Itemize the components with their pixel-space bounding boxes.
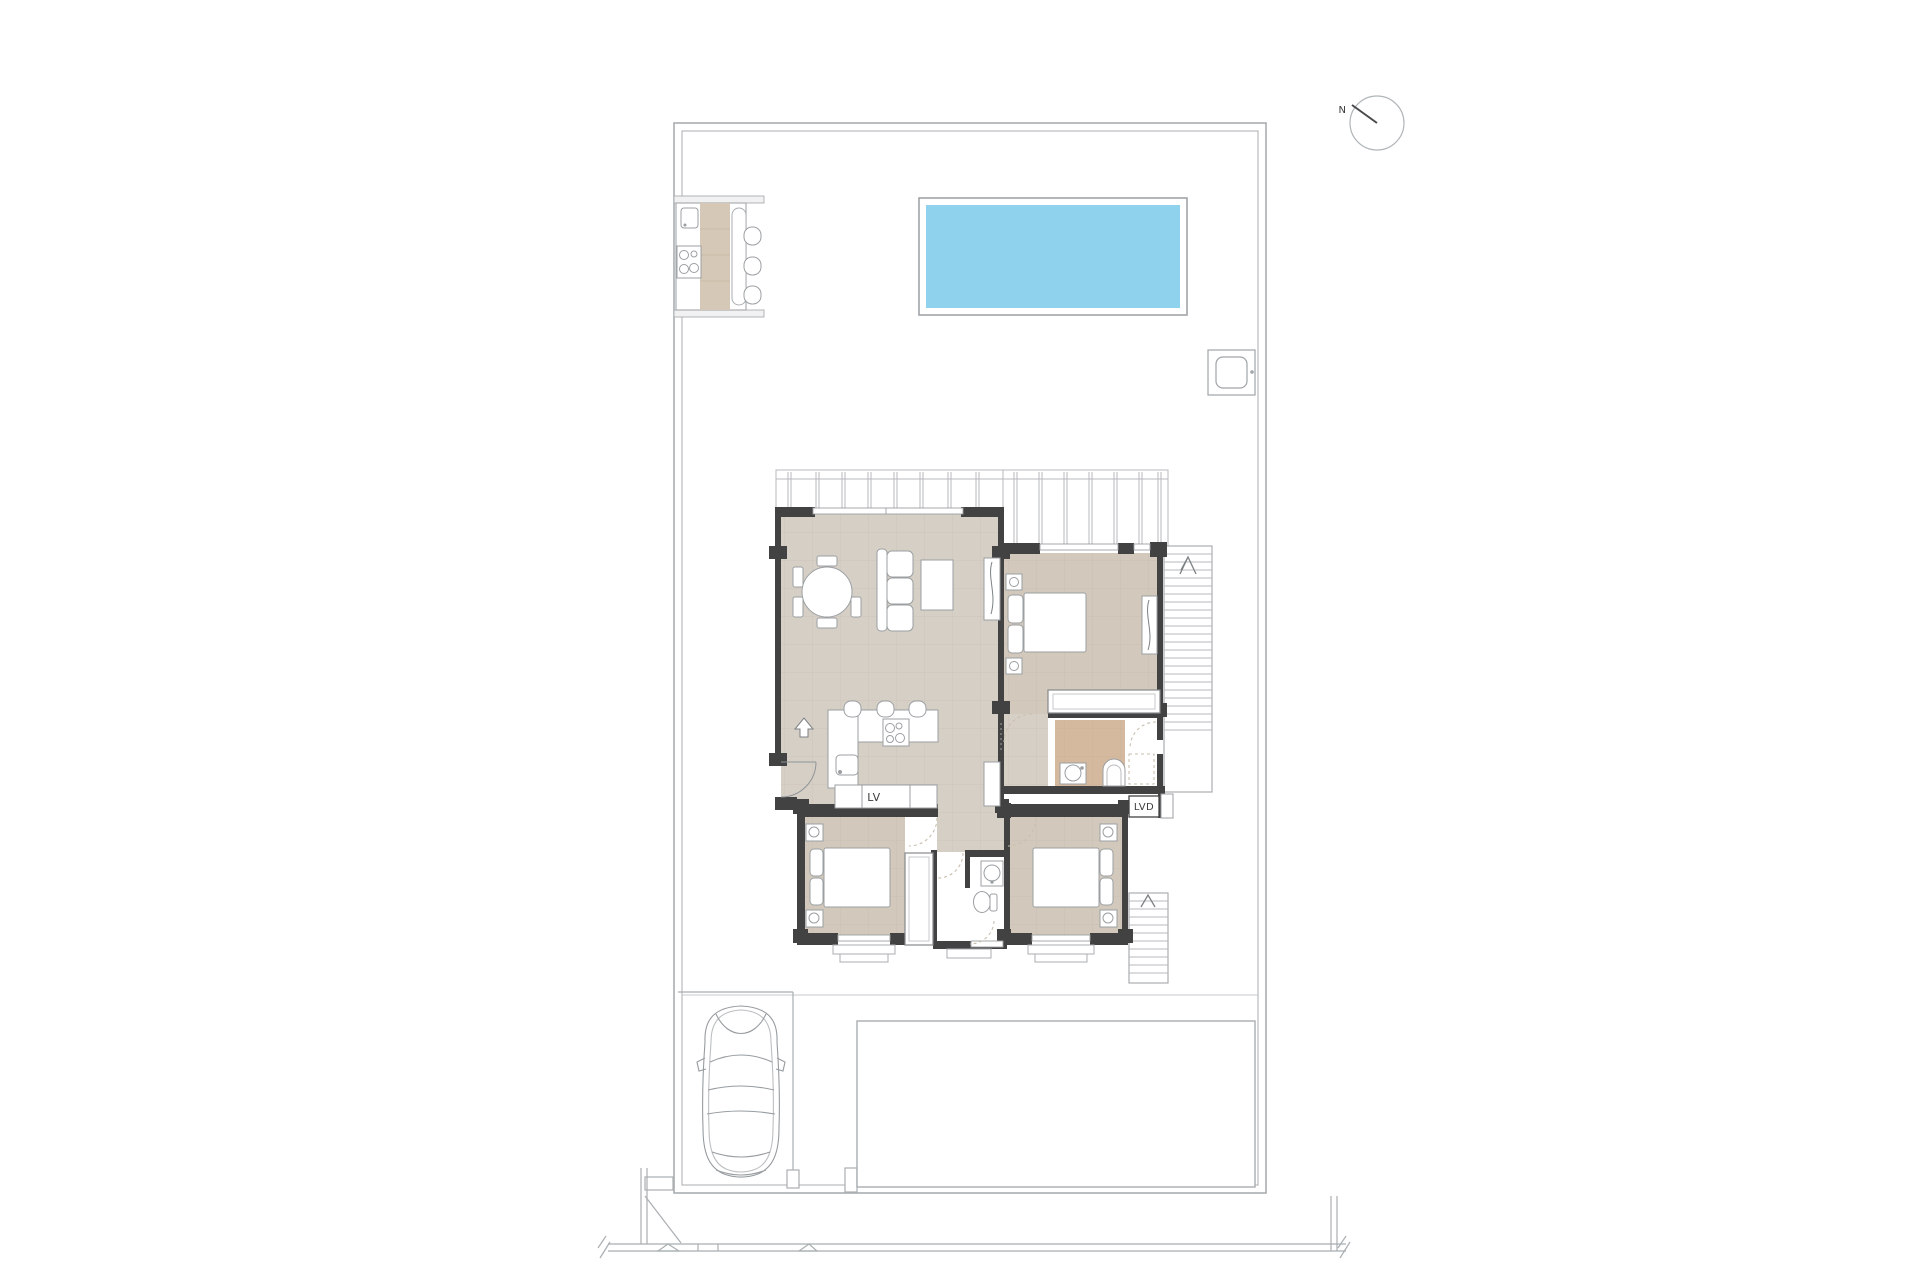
coffee-table [921,560,953,610]
bedroom2-door-arc [909,818,937,846]
laundry-label: LVD [1134,802,1154,813]
nightstand [1006,574,1022,590]
car-windshield [710,1055,772,1062]
pillow [810,878,823,905]
nightstand [1006,658,1022,674]
cooktop [883,719,909,746]
compass-needle [1352,105,1377,123]
break-mark-right [1338,1236,1350,1258]
toilet [1103,759,1125,786]
shower-room-floor [1125,720,1157,786]
pergola-slats-left [788,472,979,509]
pool [919,198,1187,315]
car-rear-window [712,1152,770,1157]
bar-stools [744,227,761,304]
parking-bay [678,992,857,1192]
driveway-terrace [857,1021,1255,1187]
bbq-cooktop [677,246,701,278]
gate-line [645,1196,681,1243]
floor-plan-canvas: N [0,0,1920,1280]
car-mirror-left [697,1058,706,1071]
bar-counter [732,208,746,305]
double-bed [1033,848,1099,907]
double-bed [1024,593,1086,652]
kitchen-counter [835,785,937,808]
north-label: N [1339,105,1346,116]
pillow [810,849,823,876]
sofa [877,549,913,631]
laundry: LVD [1129,794,1173,818]
bbq-counter-top [700,203,730,310]
site-plan-drawing: N [0,0,1920,1280]
pool-water [926,205,1180,308]
car-mirror-right [776,1058,785,1071]
pillow [1008,595,1023,623]
pillow [1008,625,1023,653]
pillow [1100,849,1113,876]
pillow [1100,878,1113,905]
outdoor-kitchen [674,196,764,317]
island-stools [844,701,926,717]
car-hood-line [716,1014,766,1034]
car [697,1006,785,1177]
dishwasher-label: LV [867,791,880,804]
break-mark-left [598,1236,610,1258]
exterior-stairs-upper [1164,546,1212,792]
gate-post [645,1177,673,1190]
outdoor-shower [1208,350,1255,395]
north-compass: N [1339,96,1404,150]
toilet [974,892,991,913]
dining-table [802,567,852,617]
exterior-stairs-lower [1129,893,1168,983]
pergola-slats-right [1014,472,1161,546]
double-bed [824,848,890,907]
